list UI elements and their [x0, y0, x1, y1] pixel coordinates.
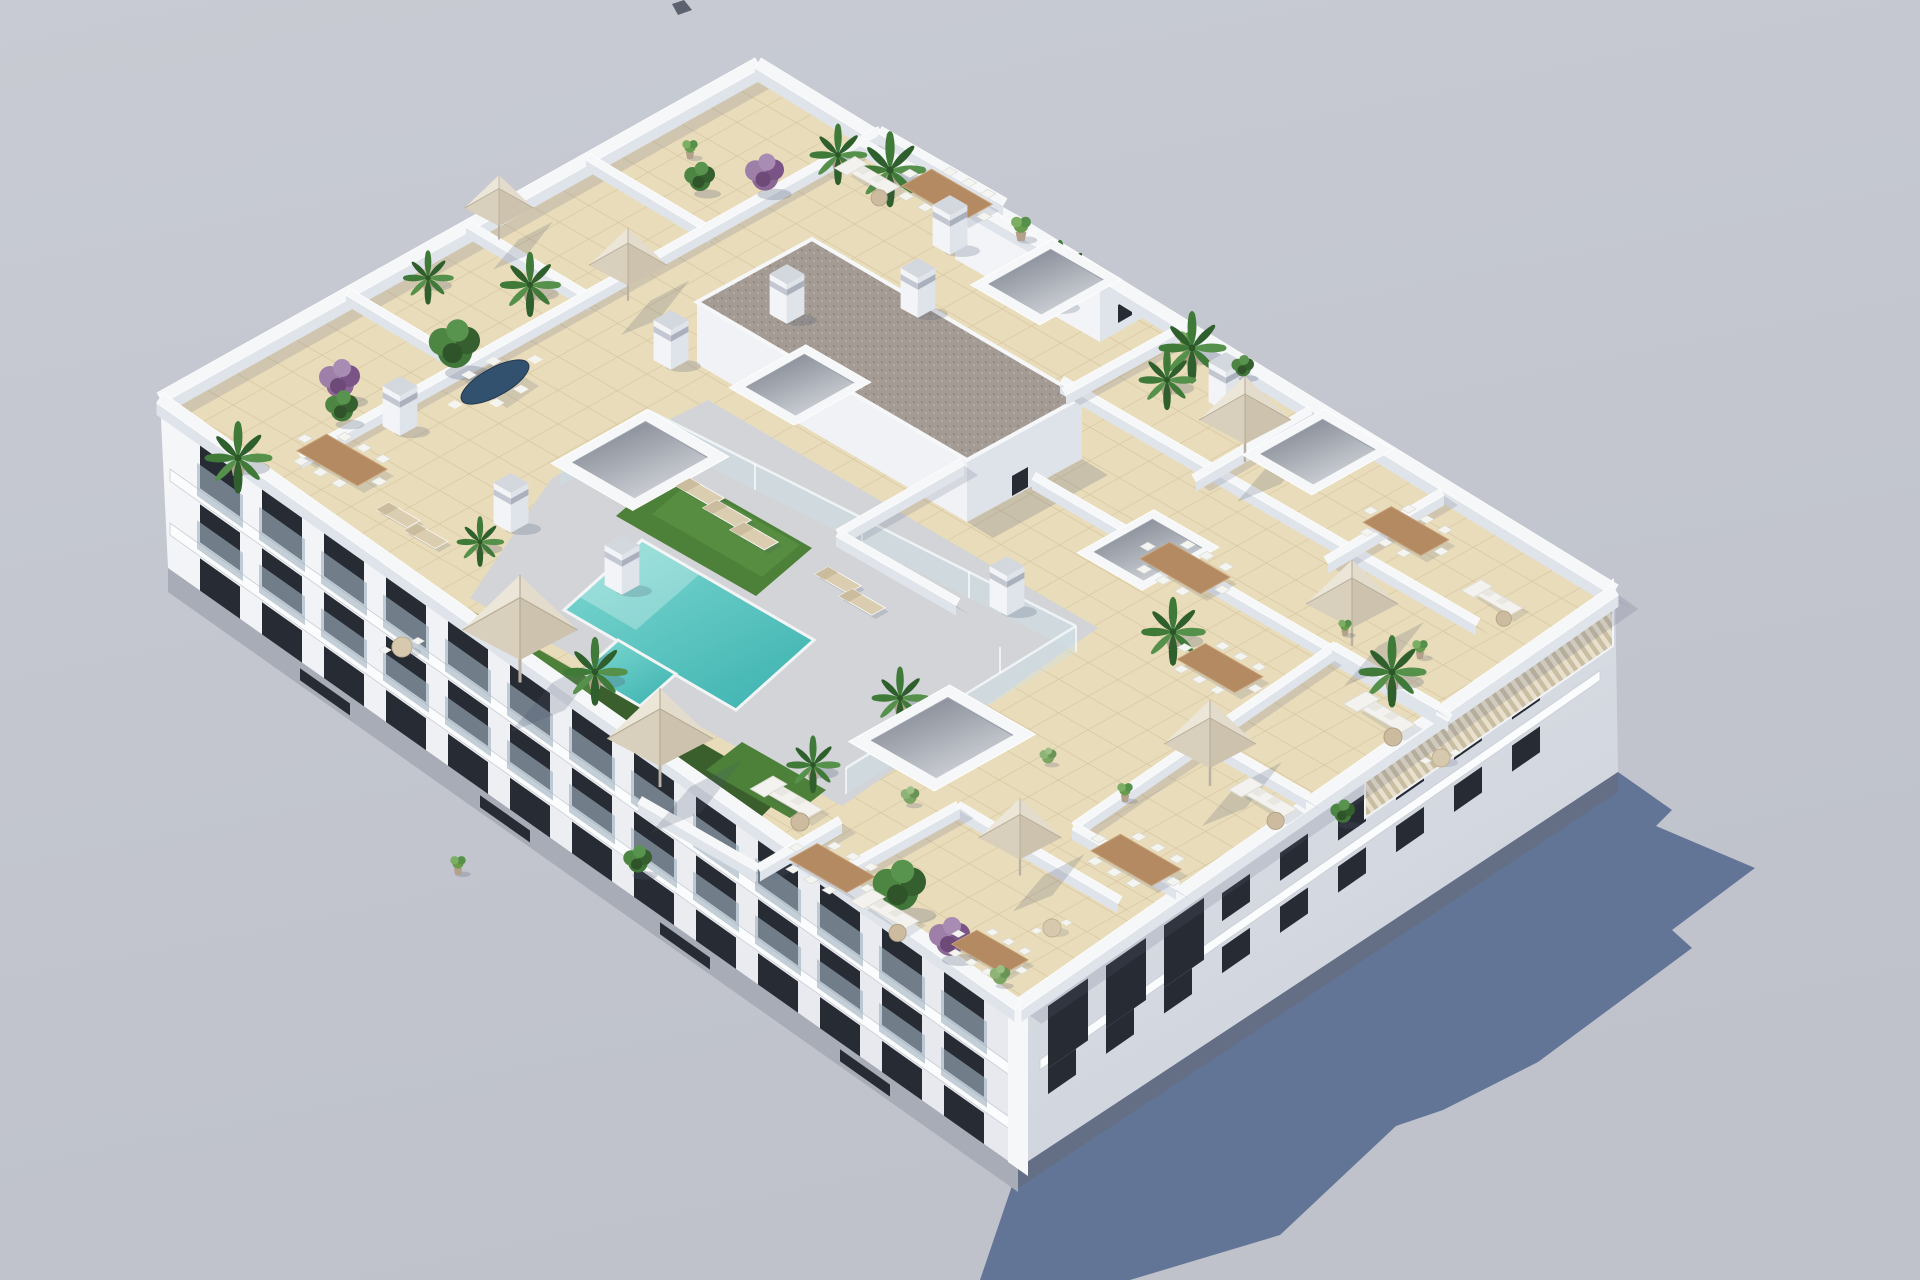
screenshot-root [0, 0, 1920, 1280]
building-render [0, 0, 1920, 1280]
corner-trim [1008, 998, 1028, 1176]
